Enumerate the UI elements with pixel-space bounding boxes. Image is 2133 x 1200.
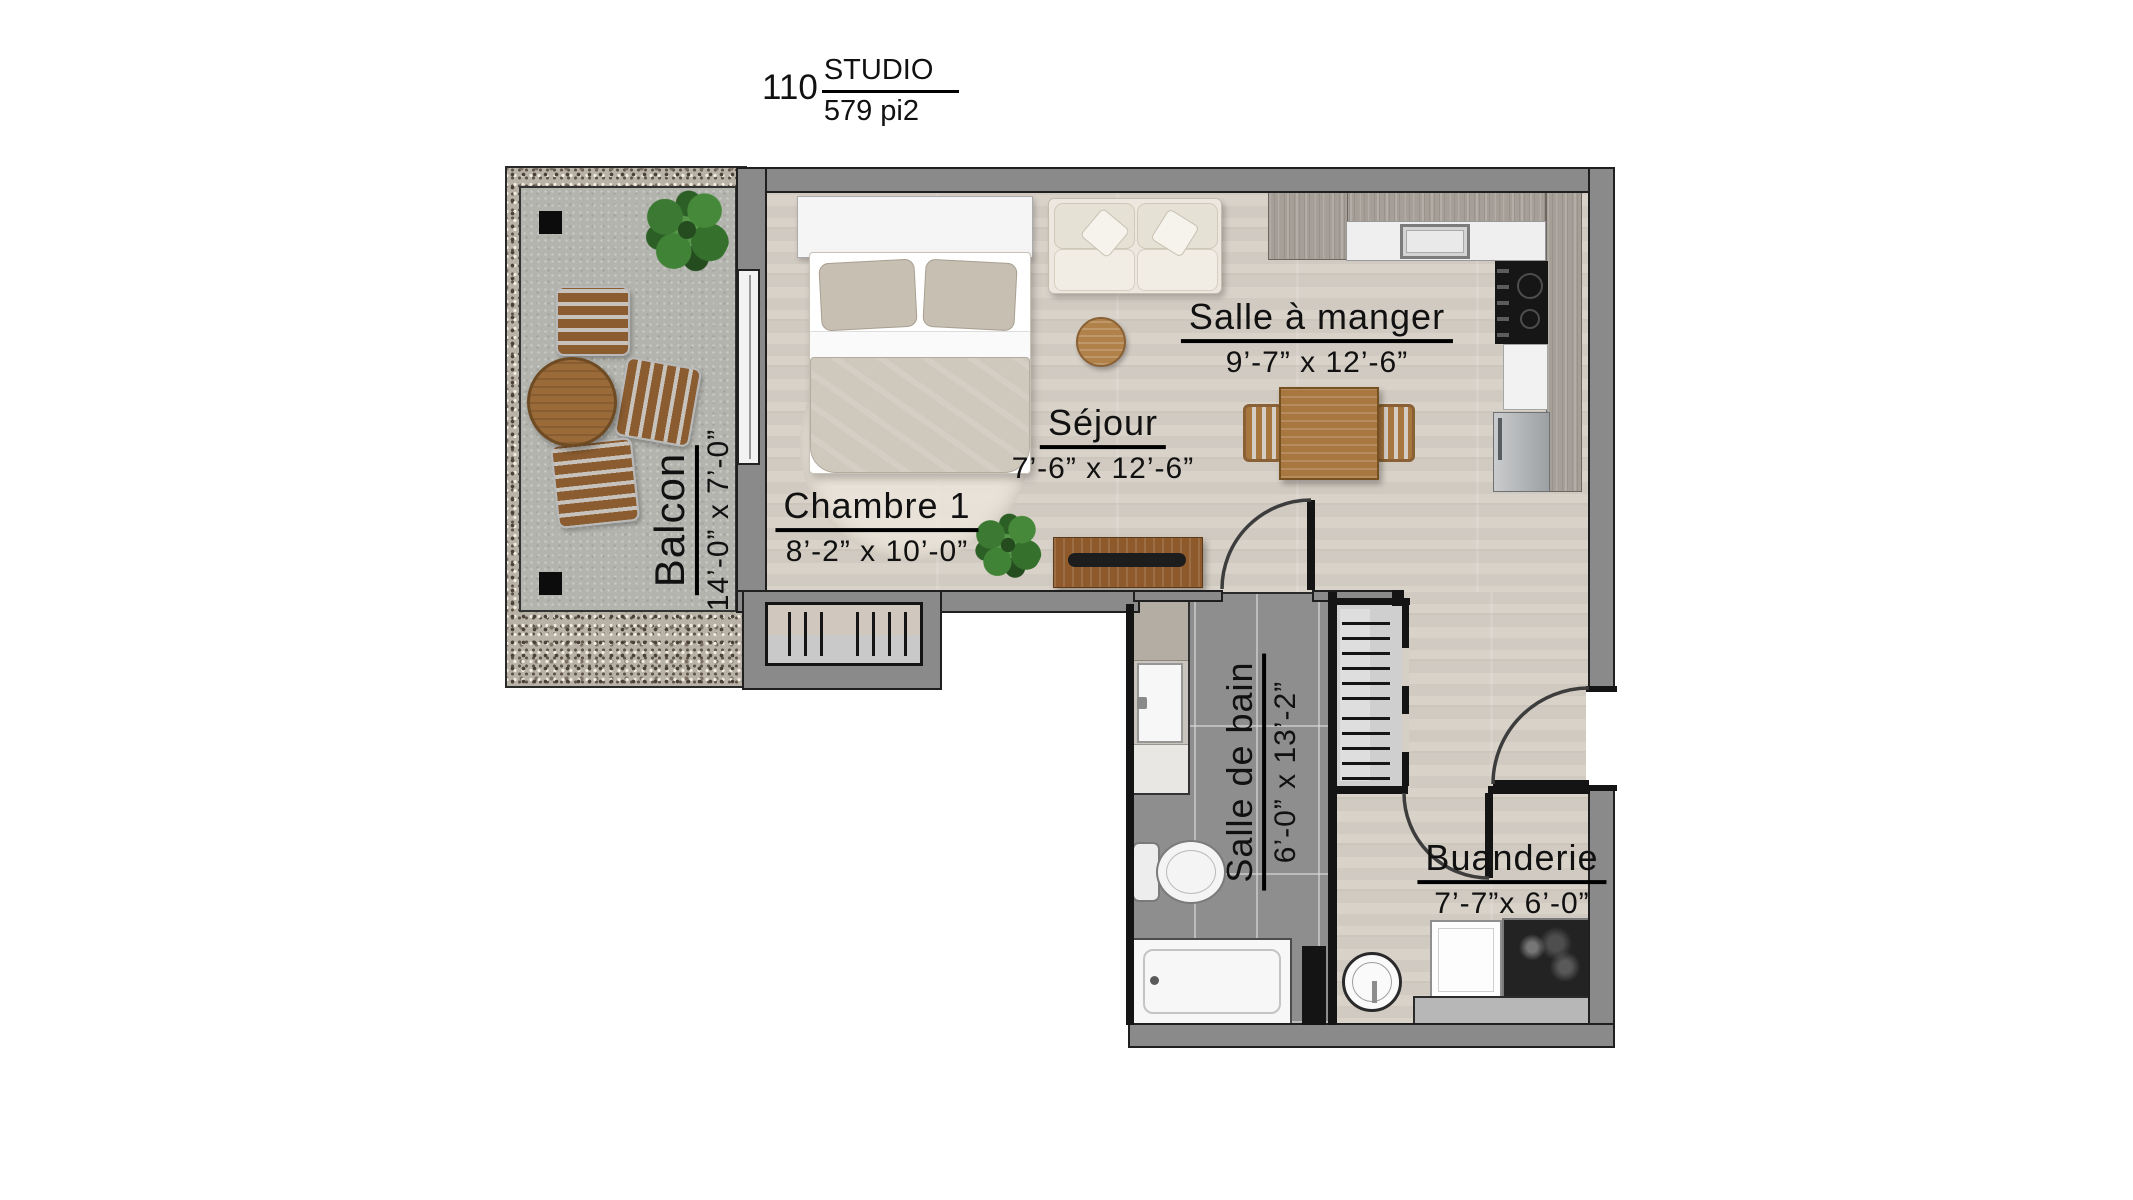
tv-console <box>1053 537 1203 588</box>
dishwasher <box>1503 344 1548 410</box>
balcony-post <box>539 572 562 595</box>
floor-plan-page: { "title": { "unit_number": "110", "unit… <box>0 0 2133 1200</box>
sliding-door <box>737 269 760 465</box>
plant <box>643 186 731 274</box>
dining-table <box>1279 387 1379 480</box>
door-jamb <box>1586 686 1617 692</box>
unit-type: STUDIO <box>822 55 960 93</box>
cooktop <box>1495 261 1548 344</box>
duvet <box>810 357 1030 473</box>
wall-south-lower <box>1128 1023 1615 1048</box>
laundry-north-wall <box>1488 786 1590 794</box>
bathtub-drain <box>1150 976 1159 985</box>
room-label-balcon: Balcon 14’-0” x 7’-0” <box>648 429 736 611</box>
toilet-bowl <box>1156 840 1226 904</box>
closet-door-gap <box>1402 648 1409 686</box>
coffee-table <box>1076 317 1126 367</box>
bathroom-north-wall <box>1133 590 1223 602</box>
bathroom-west-wall <box>1126 604 1134 1025</box>
room-dims: 9’-7” x 12’-6” <box>1181 343 1453 380</box>
plumbing-wall <box>1302 946 1326 1025</box>
sofa-seat-cushion <box>1054 249 1135 291</box>
patio-table <box>527 357 617 447</box>
refrigerator <box>1493 412 1550 492</box>
plan-title: 110 STUDIO 579 pi2 <box>762 55 959 128</box>
closet-rod-ticks <box>1342 714 1390 780</box>
room-name: Séjour <box>1040 404 1166 449</box>
dining-chair <box>1243 404 1283 462</box>
pillow <box>818 259 917 332</box>
plant <box>973 510 1043 580</box>
toilet <box>1132 840 1228 906</box>
headboard <box>797 196 1033 258</box>
door-jamb <box>1586 785 1617 791</box>
patio-chair <box>550 437 640 529</box>
dining-chair <box>1375 404 1415 462</box>
closet-north-wall <box>1330 598 1410 605</box>
room-label-chambre1: Chambre 1 8’-2” x 10’-0” <box>775 487 978 569</box>
room-dims: 8’-2” x 10’-0” <box>775 532 978 569</box>
laundry-sink <box>1502 918 1600 1000</box>
washer <box>1430 920 1502 1000</box>
unit-number: 110 <box>762 70 818 113</box>
vanity <box>1130 598 1190 795</box>
closet-door-track <box>1402 604 1409 786</box>
room-name: Buanderie <box>1417 839 1606 884</box>
room-name: Salle de bain <box>1221 653 1266 890</box>
room-dims: 7’-6” x 12’-6” <box>1012 449 1194 486</box>
pillow <box>922 259 1017 332</box>
unit-type-area: STUDIO 579 pi2 <box>822 55 960 128</box>
room-dims: 14’-0” x 7’-0” <box>699 429 736 611</box>
room-name: Salle à manger <box>1181 298 1453 343</box>
room-label-buanderie: Buanderie 7’-7”x 6’-0” <box>1417 839 1606 921</box>
closet-south-wall <box>1330 786 1408 794</box>
closet-rod-ticks <box>788 612 836 656</box>
room-label-salle-de-bain: Salle de bain 6’-0” x 13’-2” <box>1221 653 1303 890</box>
room-name: Chambre 1 <box>775 487 978 532</box>
faucet <box>1137 697 1147 709</box>
kitchen-sink <box>1400 224 1470 259</box>
bed <box>809 252 1031 474</box>
closet-door-gap <box>1402 714 1409 752</box>
wall-top <box>745 167 1615 193</box>
kitchen-side-cabinets <box>1546 190 1582 492</box>
sofa <box>1048 198 1222 294</box>
soundbar <box>1068 553 1186 567</box>
entry-door-opening <box>1586 692 1617 785</box>
unit-area: 579 pi2 <box>822 93 960 128</box>
room-dims: 6’-0” x 13’-2” <box>1266 653 1303 890</box>
patio-chair <box>556 286 630 356</box>
vanity-sink <box>1137 663 1183 743</box>
room-label-salle-a-manger: Salle à manger 9’-7” x 12’-6” <box>1181 298 1453 380</box>
bathroom-east-wall <box>1328 592 1337 1025</box>
closet-rod-ticks <box>856 612 912 656</box>
room-label-sejour: Séjour 7’-6” x 12’-6” <box>1012 404 1194 486</box>
bed-sheet-fold <box>810 331 1030 358</box>
room-dims: 7’-7”x 6’-0” <box>1417 884 1606 921</box>
room-name: Balcon <box>648 445 699 595</box>
closet-rod-ticks <box>1342 612 1390 700</box>
balcony-post <box>539 211 562 234</box>
water-heater <box>1342 952 1402 1012</box>
bathtub <box>1132 938 1292 1025</box>
kitchen-tall-cabinet <box>1268 190 1348 260</box>
